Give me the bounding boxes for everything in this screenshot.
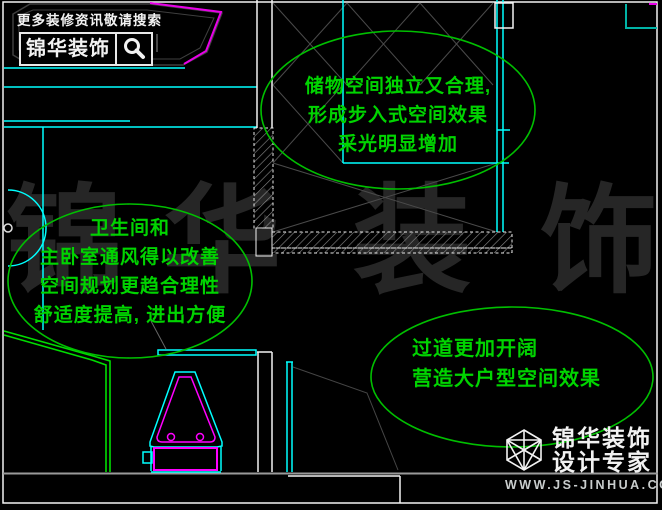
footer-tagline-label: 设计专家 [552,450,652,474]
magnifier-icon [117,34,151,64]
floorplan-screenshot: 锦 华 装 饰 [0,0,662,510]
annotation-line: 主卧室通风得以改善 [0,243,260,272]
annotation-line: 过道更加开阔 [412,334,652,364]
annotation-line: 采光明显增加 [248,130,548,159]
annotation-line: 营造大户型空间效果 [412,364,652,394]
promo-search-box: 锦华装饰 [19,32,153,66]
annotation-line: 卫生间和 [0,214,260,243]
hallway-annotation-note: 过道更加开阔 营造大户型空间效果 [412,334,652,394]
wireframe-cube-icon [502,428,546,477]
footer-brand-label: 锦华装饰 [552,426,652,450]
annotation-line: 舒适度提高, 进出方便 [0,301,260,330]
annotation-line: 空间规划更趋合理性 [0,272,260,301]
annotation-line: 储物空间独立又合理, [248,72,548,101]
footer-website-label: WWW.JS-JINHUA.COM [505,478,662,492]
bathroom-annotation-note: 卫生间和 主卧室通风得以改善 空间规划更趋合理性 舒适度提高, 进出方便 [0,214,260,330]
closet-annotation-note: 储物空间独立又合理, 形成步入式空间效果 采光明显增加 [248,72,548,159]
promo-search-hint: 更多装修资讯敬请搜索 [17,9,162,29]
promo-brand-label: 锦华装饰 [21,34,115,64]
annotation-line: 形成步入式空间效果 [248,101,548,130]
